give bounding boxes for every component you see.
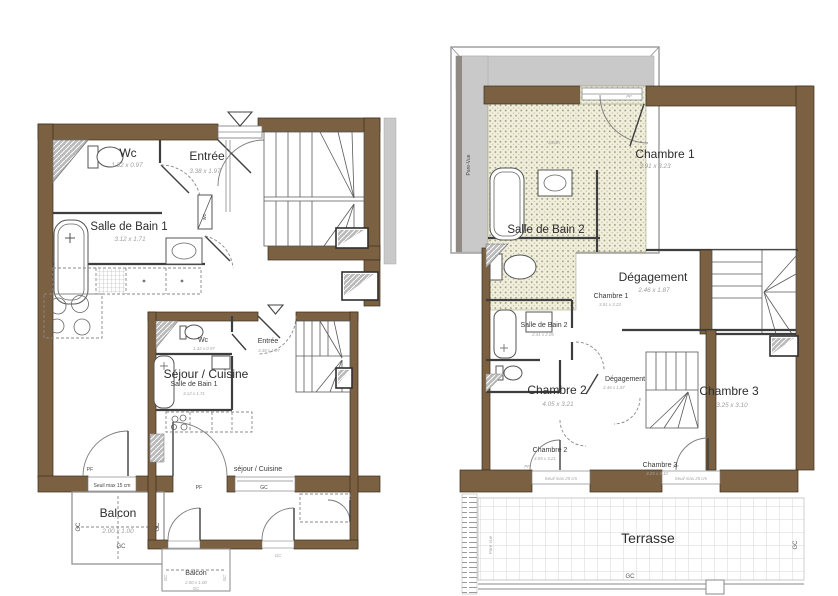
stair-window bbox=[336, 228, 368, 248]
wc-dims: 1.32 x 0.97 bbox=[111, 162, 143, 169]
jardin-label: Jardin bbox=[547, 140, 561, 145]
chambre2-dims: 4.05 x 3.21 bbox=[542, 401, 573, 408]
shower-icon bbox=[53, 140, 88, 182]
chambre1-mini-label: Chambre 1 bbox=[594, 293, 629, 300]
chambre2-mini-dims: 4.05 x 3.21 bbox=[534, 456, 556, 461]
balcon-mini: Balcon 2.00 x 1.00 GC GC GC bbox=[162, 549, 230, 591]
wall bbox=[227, 476, 235, 492]
seuil15-label: Seuil max 15 cm bbox=[94, 483, 131, 489]
gc-label: GC bbox=[117, 544, 127, 550]
duct-shaft: wc bbox=[198, 195, 212, 229]
pf-label: PF bbox=[524, 464, 530, 469]
sdb1-dims: 3.12 x 1.71 bbox=[114, 236, 145, 243]
entree-mini-dims: 3.38 x 1.97 bbox=[258, 348, 280, 353]
gc-label: GC bbox=[76, 522, 82, 532]
sejour-mini-label: séjour / Cuisine bbox=[234, 466, 282, 473]
gc-label: GC bbox=[222, 574, 227, 581]
sdb2-label: Salle de Bain 2 bbox=[507, 224, 584, 236]
chambre1-mini-dims: 3.91 x 3.23 bbox=[599, 302, 621, 307]
staircase-mini bbox=[646, 352, 698, 428]
floor2-plan: Pare-Vue PF bbox=[451, 47, 814, 594]
bathtub-icon bbox=[54, 220, 88, 304]
wall bbox=[720, 470, 798, 492]
dashed-zone bbox=[300, 494, 350, 522]
entree-dims: 3.38 x 1.97 bbox=[189, 168, 221, 175]
chambre3-dims: 3.25 x 3.10 bbox=[716, 402, 748, 409]
balcon-dims: 2.00 x 1.00 bbox=[101, 528, 134, 535]
shaft-hatch bbox=[150, 434, 164, 462]
degagement-dims: 2.46 x 1.87 bbox=[637, 287, 670, 294]
bathtub-icon bbox=[494, 310, 516, 358]
terrasse: Terrasse Pare Vue GC GC bbox=[462, 494, 804, 594]
wall bbox=[646, 86, 812, 106]
window-box bbox=[770, 336, 798, 356]
chambre1-label: Chambre 1 bbox=[635, 147, 695, 161]
pare-vue-label: Pare Vue bbox=[488, 535, 493, 554]
degagement-label: Dégagement bbox=[619, 270, 688, 284]
floorplan-drawing: wc bbox=[0, 0, 838, 596]
balcon-label: Balcon bbox=[100, 506, 137, 520]
pare-vue-wall bbox=[456, 56, 462, 252]
wall bbox=[38, 124, 218, 140]
wall bbox=[700, 250, 712, 334]
chambre3-label: Chambre 3 bbox=[699, 384, 759, 398]
drainer-icon bbox=[97, 269, 125, 293]
balcon-mini-label: Balcon bbox=[185, 570, 207, 577]
north-marker-icon bbox=[268, 305, 283, 314]
pare-vue-strip bbox=[462, 494, 477, 594]
shower-icon bbox=[486, 374, 504, 392]
gc-label: GC bbox=[793, 540, 799, 550]
entree-mini-label: Entrée bbox=[258, 338, 279, 345]
sdb1-mini-dims: 3.12 x 1.71 bbox=[183, 391, 205, 396]
sejour-label: Séjour / Cuisine bbox=[164, 367, 249, 381]
pf-label: PF bbox=[626, 94, 632, 99]
sdb1-mini-label: Salle de Bain 1 bbox=[170, 381, 217, 388]
sdb1-label: Salle de Bain 1 bbox=[90, 221, 167, 233]
wall bbox=[796, 86, 814, 470]
floor1-inset-plan: GC Balcon 2.00 x 1.00 GC GC GC Wc 1.32 x… bbox=[148, 305, 358, 591]
gc-label: GC bbox=[275, 553, 282, 558]
sdb2-mini-dims: 2.41 x 2.05 bbox=[531, 332, 554, 337]
entree-label: Entrée bbox=[189, 149, 225, 163]
floor1-plan: wc bbox=[38, 112, 396, 591]
gc-label: GC bbox=[163, 574, 168, 581]
seuil25-label: Seuil max 25 cm bbox=[675, 476, 708, 481]
chambre1-dims: 3.91 x 3.23 bbox=[639, 163, 671, 170]
wc-mini-dims: 1.32 x 0.97 bbox=[193, 346, 215, 351]
north-marker-icon bbox=[228, 112, 252, 126]
wc-mini-label: Wc bbox=[198, 337, 209, 344]
wall bbox=[258, 118, 380, 132]
staircase bbox=[712, 250, 796, 334]
room-sdb1: wc bbox=[53, 195, 233, 304]
sink-icon bbox=[538, 170, 572, 196]
floorplan-sheet: wc bbox=[0, 0, 838, 596]
party-wall-band bbox=[384, 118, 396, 264]
degagement-mini-dims: 2.46 x 1.87 bbox=[602, 385, 625, 390]
pf-label: PF bbox=[87, 467, 93, 473]
wall bbox=[38, 476, 88, 492]
wall bbox=[460, 470, 532, 492]
wc-label: Wc bbox=[119, 146, 136, 160]
terrasse-label: Terrasse bbox=[621, 530, 675, 546]
wall bbox=[295, 476, 380, 492]
chambre3-mini-label: Chambre 3 bbox=[643, 462, 678, 469]
gc-label: GC bbox=[193, 586, 200, 591]
wall bbox=[38, 124, 53, 478]
balcon-mini-dims: 2.00 x 1.00 bbox=[184, 580, 207, 585]
seuil25-label: Seuil max 25 cm bbox=[545, 476, 578, 481]
gc-label: GC bbox=[260, 485, 268, 491]
gc-label: GC bbox=[626, 574, 636, 580]
shower-icon bbox=[156, 321, 178, 348]
window-box bbox=[342, 272, 378, 300]
pf-label: PF bbox=[196, 485, 202, 491]
chambre3-mini-dims: 3.25 x 3.10 bbox=[646, 471, 668, 476]
pare-vue-label: Pare-Vue bbox=[466, 154, 472, 175]
degagement-mini-label: Dégagement bbox=[605, 376, 645, 383]
chambre2-label: Chambre 2 bbox=[527, 383, 587, 397]
sdb2-mini-label: Salle de Bain 2 bbox=[520, 322, 567, 329]
wall bbox=[484, 86, 580, 104]
chambre2-mini-label: Chambre 2 bbox=[533, 447, 568, 454]
duct-label: wc bbox=[202, 213, 208, 220]
terrasse-step bbox=[706, 580, 724, 594]
sink-icon bbox=[166, 238, 202, 264]
